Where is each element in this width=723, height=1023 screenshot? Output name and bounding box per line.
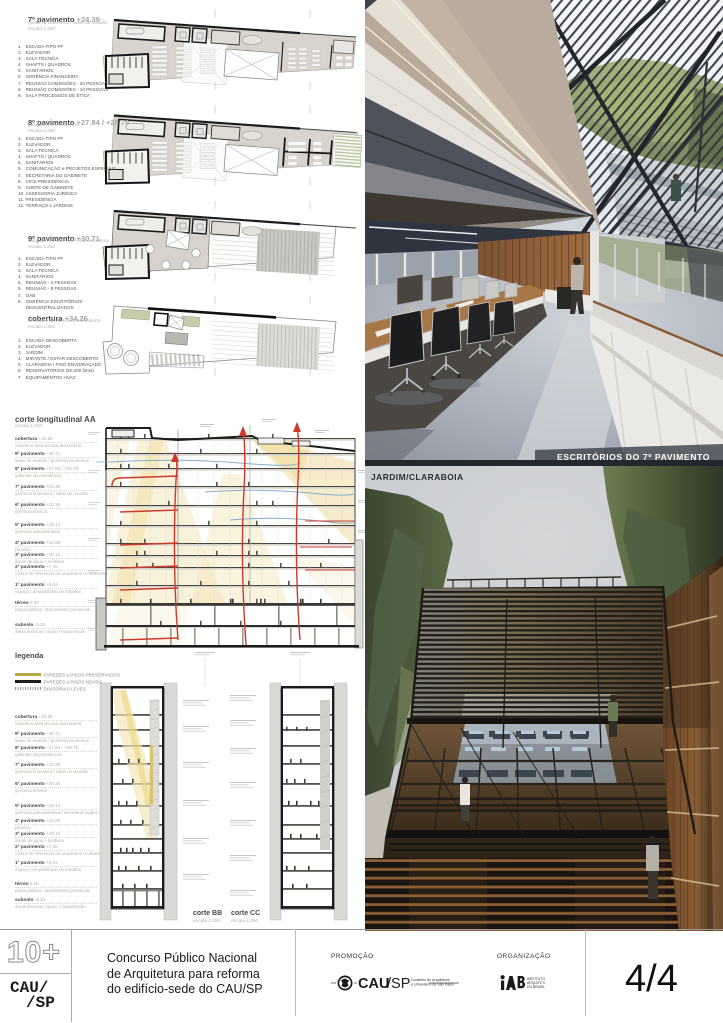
svg-text:CAU: CAU <box>358 976 389 992</box>
svg-text:e Urbanismo de São Paulo: e Urbanismo de São Paulo <box>411 983 454 987</box>
svg-text:Conselho de Arquitetura: Conselho de Arquitetura <box>411 978 450 982</box>
svg-text:DO BRASIL: DO BRASIL <box>527 985 545 989</box>
svg-text:/SP: /SP <box>387 976 410 992</box>
